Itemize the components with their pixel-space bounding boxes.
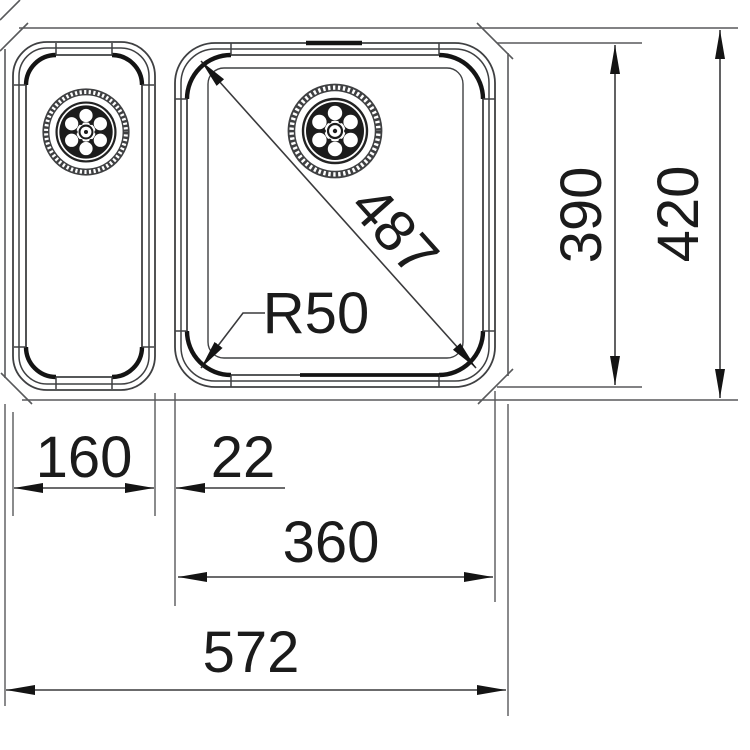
- label-overall-depth: 420: [646, 166, 711, 263]
- label-large-bowl-depth: 390: [549, 167, 614, 264]
- label-bowl-diagonal: 487: [338, 173, 451, 288]
- corner-break-line: [0, 0, 20, 20]
- chamfer-bottom-left: [1, 373, 32, 404]
- small-bowl-rim-inner: [19, 48, 149, 384]
- label-overall-width: 572: [203, 620, 300, 685]
- radius-leader-line: [201, 313, 265, 368]
- label-large-bowl-width: 360: [283, 510, 380, 575]
- label-corner-radius: R50: [263, 281, 369, 346]
- label-bowl-gap: 22: [211, 425, 276, 490]
- large-bowl-drain-icon: [289, 85, 382, 178]
- label-small-bowl-width: 160: [36, 425, 133, 490]
- dimension-labels: 160 22 360 572 390 420 487 R50: [36, 166, 711, 685]
- drawing-canvas: 160 22 360 572 390 420 487 R50: [0, 0, 750, 750]
- chamfer-top-left: [0, 23, 28, 51]
- sink-technical-drawing: 160 22 360 572 390 420 487 R50: [0, 0, 750, 750]
- small-bowl-drain-icon: [43, 89, 129, 175]
- small-bowl: [13, 42, 155, 390]
